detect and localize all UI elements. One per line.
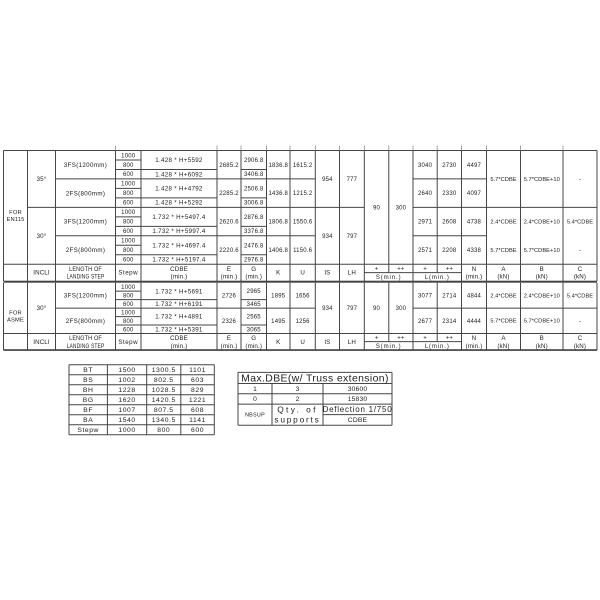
svg-text:1540: 1540 [118, 417, 135, 424]
svg-text:5.7*CDBE: 5.7*CDBE [490, 177, 516, 183]
svg-text:C: C [578, 335, 583, 342]
svg-text:5.7*CDBE: 5.7*CDBE [490, 248, 516, 254]
svg-text:(min.): (min.) [171, 274, 188, 281]
svg-text:Stepw: Stepw [118, 270, 138, 277]
svg-text:2314: 2314 [442, 319, 457, 325]
svg-text:2.4*CDBE+10: 2.4*CDBE+10 [524, 293, 560, 299]
svg-text:1.732 * H+4891: 1.732 * H+4891 [155, 314, 203, 321]
svg-text:CDBE: CDBE [170, 335, 188, 342]
svg-text:++: ++ [397, 267, 405, 273]
svg-text:N: N [472, 266, 477, 273]
svg-text:A: A [501, 266, 506, 273]
svg-text:+: + [375, 267, 379, 273]
svg-text:3077: 3077 [418, 293, 433, 299]
svg-text:1000: 1000 [121, 182, 136, 188]
svg-text:1: 1 [253, 386, 257, 393]
svg-text:1806.8: 1806.8 [268, 220, 288, 226]
svg-text:1.428 * H+5592: 1.428 * H+5592 [155, 157, 203, 164]
svg-text:2876.8: 2876.8 [244, 215, 264, 221]
svg-text:1.732 * H+5997.4: 1.732 * H+5997.4 [152, 228, 205, 235]
svg-text:IS: IS [324, 339, 330, 346]
svg-text:4738: 4738 [467, 220, 482, 226]
svg-text:1615.2: 1615.2 [293, 163, 313, 169]
svg-text:2330: 2330 [442, 191, 457, 197]
svg-text:1300.5: 1300.5 [152, 367, 176, 374]
svg-text:5.7*CDBE: 5.7*CDBE [490, 319, 516, 325]
svg-text:2730: 2730 [442, 163, 457, 169]
svg-text:2326: 2326 [222, 319, 237, 325]
svg-text:(min.): (min.) [466, 343, 483, 350]
svg-text:FOR: FOR [9, 210, 22, 216]
svg-text:(min.): (min.) [221, 274, 238, 281]
svg-text:BA: BA [83, 417, 93, 424]
svg-text:3FS(1200mm): 3FS(1200mm) [64, 293, 107, 300]
svg-text:B: B [540, 335, 544, 342]
svg-text:600: 600 [123, 201, 134, 207]
svg-text:1221: 1221 [189, 397, 206, 404]
svg-text:0: 0 [253, 396, 257, 403]
svg-text:600: 600 [123, 229, 134, 235]
svg-text:1.732 * H+5497.4: 1.732 * H+5497.4 [152, 214, 205, 221]
svg-text:K: K [276, 270, 281, 277]
svg-text:4444: 4444 [467, 319, 482, 325]
svg-text:800: 800 [123, 220, 134, 226]
svg-text:INCLI: INCLI [33, 339, 50, 346]
svg-text:2.4*CDBE+10: 2.4*CDBE+10 [524, 220, 560, 226]
svg-text:1340.5: 1340.5 [152, 417, 176, 424]
svg-text:L(min.): L(min.) [425, 275, 450, 281]
svg-text:1.732 * H+5197.4: 1.732 * H+5197.4 [152, 257, 205, 264]
svg-text:15830: 15830 [348, 396, 368, 403]
svg-text:2965: 2965 [247, 289, 262, 295]
svg-text:797: 797 [347, 306, 358, 312]
svg-text:1656: 1656 [296, 293, 311, 299]
svg-text:2565: 2565 [247, 315, 262, 321]
svg-text:35°: 35° [37, 175, 47, 183]
svg-text:2714: 2714 [442, 293, 457, 299]
svg-text:1028.5: 1028.5 [152, 387, 176, 394]
svg-text:S(min.): S(min.) [376, 344, 402, 350]
svg-text:G: G [251, 335, 256, 342]
svg-text:1101: 1101 [189, 367, 206, 374]
svg-text:INCLI: INCLI [33, 270, 50, 277]
svg-text:-: - [579, 319, 581, 325]
svg-text:800: 800 [123, 163, 134, 169]
svg-text:600: 600 [123, 258, 134, 264]
svg-text:CDBE: CDBE [170, 266, 188, 273]
svg-text:2208: 2208 [442, 248, 457, 254]
svg-text:(min.): (min.) [171, 343, 188, 350]
svg-text:4338: 4338 [467, 248, 482, 254]
svg-text:800: 800 [123, 248, 134, 254]
svg-text:++: ++ [446, 336, 454, 342]
svg-text:U: U [300, 270, 305, 277]
svg-text:90: 90 [373, 306, 381, 312]
svg-text:934: 934 [322, 234, 333, 240]
svg-text:1436.8: 1436.8 [268, 191, 288, 197]
svg-text:-: - [579, 177, 581, 183]
svg-text:2.4*CDBE: 2.4*CDBE [490, 293, 516, 299]
svg-text:777: 777 [347, 177, 358, 183]
svg-text:E: E [227, 266, 231, 273]
svg-text:3006.8: 3006.8 [244, 201, 264, 207]
svg-text:2506.8: 2506.8 [244, 187, 264, 193]
svg-text:(kN): (kN) [574, 274, 586, 281]
svg-text:600: 600 [123, 172, 134, 178]
svg-text:2608: 2608 [442, 220, 457, 226]
svg-text:Deflection 1/750: Deflection 1/750 [323, 405, 393, 414]
svg-text:1141: 1141 [189, 417, 206, 424]
svg-text:2476.8: 2476.8 [244, 243, 264, 249]
svg-text:2620.6: 2620.6 [219, 220, 239, 226]
svg-text:802.5: 802.5 [154, 377, 174, 384]
svg-text:1495: 1495 [271, 319, 286, 325]
svg-text:1500: 1500 [118, 367, 135, 374]
svg-text:A: A [501, 335, 506, 342]
svg-text:1.428 * H+6092: 1.428 * H+6092 [155, 171, 203, 178]
svg-text:4844: 4844 [467, 293, 482, 299]
svg-text:5.4*CDBE: 5.4*CDBE [567, 293, 593, 299]
svg-text:3040: 3040 [418, 163, 433, 169]
svg-text:1.428 * H+4792: 1.428 * H+4792 [155, 186, 203, 193]
svg-text:603: 603 [191, 377, 204, 384]
svg-text:2726: 2726 [222, 293, 237, 299]
svg-text:1.428 * H+5292: 1.428 * H+5292 [155, 200, 203, 207]
svg-text:1150.6: 1150.6 [293, 248, 313, 254]
svg-text:4497: 4497 [467, 163, 482, 169]
svg-text:300: 300 [396, 205, 407, 211]
svg-text:(kN): (kN) [497, 274, 509, 281]
svg-text:1000: 1000 [118, 427, 135, 434]
svg-text:+: + [375, 336, 379, 342]
svg-text:BT: BT [83, 367, 93, 374]
svg-text:600: 600 [123, 302, 134, 308]
svg-text:1007: 1007 [118, 407, 135, 414]
svg-text:90: 90 [373, 205, 381, 211]
svg-text:2FS(800mm): 2FS(800mm) [66, 318, 106, 325]
svg-text:BH: BH [83, 387, 94, 394]
svg-text:5.7*CDBE+10: 5.7*CDBE+10 [524, 319, 560, 325]
svg-text:3465: 3465 [247, 302, 262, 308]
svg-text:S(min.): S(min.) [376, 275, 402, 281]
svg-text:(min.): (min.) [466, 274, 483, 281]
svg-text:2.4*CDBE: 2.4*CDBE [490, 220, 516, 226]
svg-text:800: 800 [123, 319, 134, 325]
svg-text:(min.): (min.) [221, 343, 238, 350]
svg-text:2640: 2640 [418, 191, 433, 197]
svg-text:(kN): (kN) [574, 343, 586, 350]
svg-text:BF: BF [83, 407, 93, 414]
svg-text:LENGTH OF: LENGTH OF [69, 336, 102, 342]
svg-text:1620: 1620 [118, 397, 135, 404]
svg-text:1002: 1002 [118, 377, 135, 384]
svg-text:Max.DBE(w/ Truss extension): Max.DBE(w/ Truss extension) [241, 374, 389, 385]
svg-text:2906.8: 2906.8 [244, 158, 264, 164]
svg-text:1550.6: 1550.6 [293, 220, 313, 226]
svg-text:LH: LH [348, 270, 356, 277]
svg-text:2677: 2677 [418, 319, 433, 325]
svg-text:2571: 2571 [418, 248, 433, 254]
svg-text:+: + [423, 336, 427, 342]
svg-text:N: N [472, 335, 477, 342]
svg-text:(kN): (kN) [536, 343, 548, 350]
svg-text:++: ++ [446, 267, 454, 273]
svg-text:++: ++ [397, 336, 405, 342]
svg-text:C: C [578, 266, 583, 273]
svg-text:(min.): (min.) [245, 274, 262, 281]
svg-text:LENGTH OF: LENGTH OF [69, 267, 102, 273]
svg-text:1000: 1000 [121, 239, 136, 245]
svg-text:+: + [423, 267, 427, 273]
svg-text:5.4*CDBE: 5.4*CDBE [567, 220, 593, 226]
svg-text:807.5: 807.5 [154, 407, 174, 414]
svg-text:B: B [540, 266, 544, 273]
svg-text:1228: 1228 [118, 387, 135, 394]
svg-text:797: 797 [347, 234, 358, 240]
svg-text:1420.5: 1420.5 [152, 397, 176, 404]
svg-text:829: 829 [191, 387, 204, 394]
svg-text:934: 934 [322, 306, 333, 312]
svg-text:FOR: FOR [9, 311, 22, 317]
svg-text:1000: 1000 [121, 285, 136, 291]
svg-text:5.7*CDBE+10: 5.7*CDBE+10 [524, 177, 560, 183]
svg-text:600: 600 [123, 327, 134, 333]
svg-text:LANDING STEP: LANDING STEP [67, 274, 105, 281]
svg-text:BG: BG [83, 397, 94, 404]
svg-text:1836.8: 1836.8 [268, 163, 288, 169]
svg-text:3406.8: 3406.8 [244, 172, 264, 178]
svg-text:-: - [579, 248, 581, 254]
svg-text:3065: 3065 [247, 327, 262, 333]
svg-text:3FS(1200mm): 3FS(1200mm) [64, 162, 107, 169]
svg-text:5.7*CDBE+10: 5.7*CDBE+10 [524, 248, 560, 254]
svg-text:LANDING STEP: LANDING STEP [67, 343, 105, 350]
svg-text:(kN): (kN) [497, 343, 509, 350]
svg-text:K: K [276, 339, 281, 346]
svg-text:U: U [300, 339, 305, 346]
svg-text:supports: supports [274, 415, 320, 425]
svg-text:Qty. of: Qty. of [277, 404, 318, 414]
svg-text:(min.): (min.) [245, 343, 262, 350]
svg-text:2976.8: 2976.8 [244, 258, 264, 264]
svg-text:1256: 1256 [296, 319, 311, 325]
svg-text:G: G [251, 266, 256, 273]
svg-text:800: 800 [123, 293, 134, 299]
svg-text:1.732 * H+5391: 1.732 * H+5391 [155, 326, 203, 333]
svg-text:EN115: EN115 [6, 217, 24, 223]
svg-text:2FS(800mm): 2FS(800mm) [66, 247, 106, 254]
svg-text:1.732 * H+6191: 1.732 * H+6191 [155, 301, 203, 308]
svg-text:Stepw: Stepw [118, 339, 138, 346]
svg-text:2220.6: 2220.6 [219, 248, 239, 254]
svg-text:L(min.): L(min.) [425, 344, 450, 350]
svg-text:1000: 1000 [121, 153, 136, 159]
svg-text:2285.2: 2285.2 [219, 191, 239, 197]
svg-text:800: 800 [157, 427, 170, 434]
svg-text:608: 608 [191, 407, 204, 414]
svg-text:600: 600 [191, 427, 204, 434]
svg-text:2: 2 [296, 396, 300, 403]
svg-text:800: 800 [123, 191, 134, 197]
svg-text:ASME: ASME [7, 318, 24, 324]
svg-text:E: E [227, 335, 231, 342]
svg-text:30600: 30600 [348, 386, 368, 393]
svg-text:3FS(1200mm): 3FS(1200mm) [64, 219, 107, 226]
svg-text:30°: 30° [37, 232, 47, 240]
svg-text:NBSUP: NBSUP [245, 413, 265, 419]
svg-text:1000: 1000 [121, 210, 136, 216]
svg-text:1.732 * H+5691: 1.732 * H+5691 [155, 288, 203, 295]
svg-text:954: 954 [322, 177, 333, 183]
svg-text:4097: 4097 [467, 191, 482, 197]
svg-text:1895: 1895 [271, 293, 286, 299]
svg-text:LH: LH [348, 339, 356, 346]
svg-text:IS: IS [324, 270, 330, 277]
svg-text:(kN): (kN) [536, 274, 548, 281]
svg-text:CDBE: CDBE [348, 417, 368, 424]
svg-text:1.732 * H+4697.4: 1.732 * H+4697.4 [152, 242, 205, 249]
svg-text:Stepw: Stepw [77, 427, 99, 434]
svg-text:3: 3 [296, 386, 300, 393]
svg-text:300: 300 [396, 306, 407, 312]
svg-text:1215.2: 1215.2 [293, 191, 313, 197]
svg-text:1000: 1000 [121, 310, 136, 316]
svg-text:30°: 30° [37, 304, 47, 312]
svg-text:3376.8: 3376.8 [244, 229, 264, 235]
svg-text:2971: 2971 [418, 220, 433, 226]
svg-text:2FS(800mm): 2FS(800mm) [66, 190, 106, 197]
svg-text:BS: BS [83, 377, 93, 384]
svg-text:1406.8: 1406.8 [268, 248, 288, 254]
svg-text:2685.2: 2685.2 [219, 163, 239, 169]
